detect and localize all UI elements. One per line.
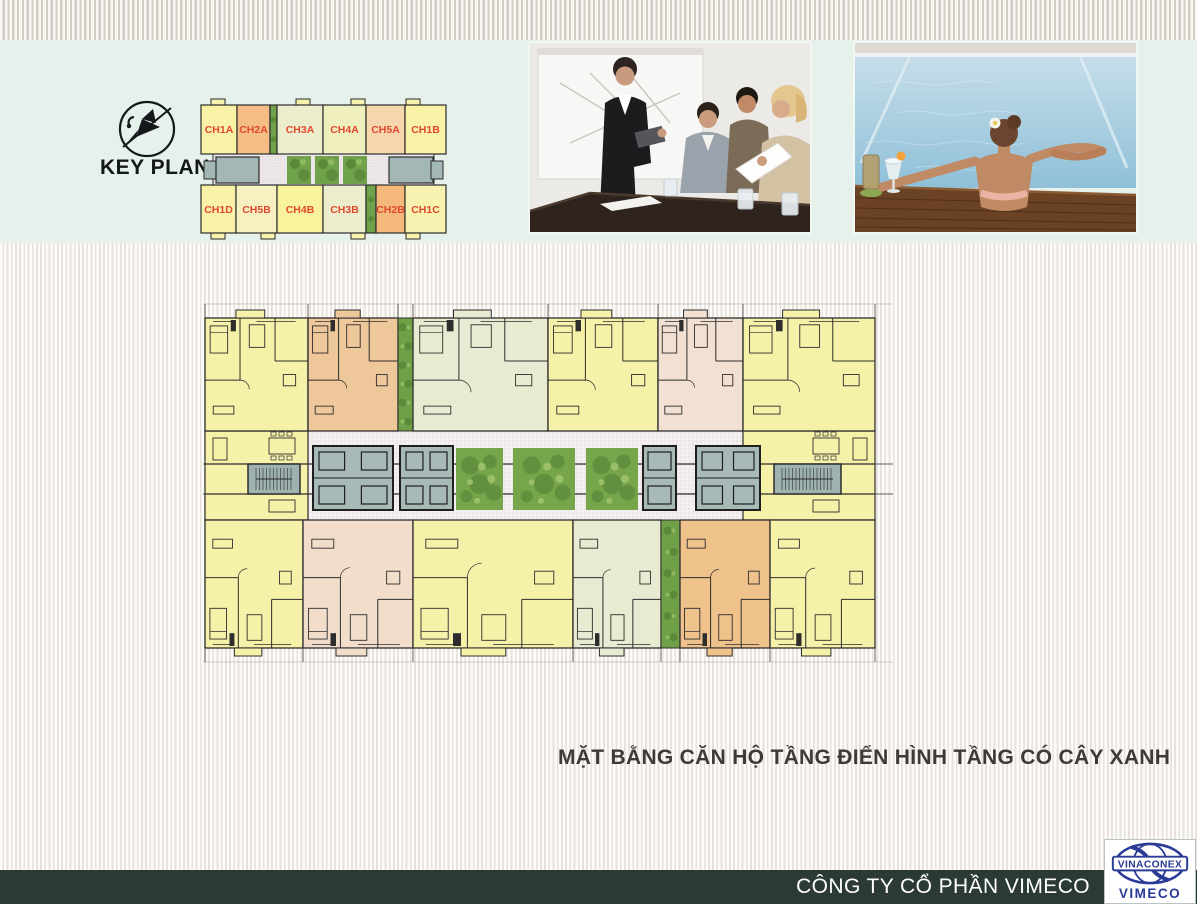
corridor-garden: [513, 448, 575, 510]
business-meeting-illustration: [530, 43, 810, 232]
plan-unit-strip: [398, 318, 413, 431]
logo-vinaconex-text: VINACONEX: [1118, 859, 1182, 870]
plan-unit-CH2B: [680, 520, 770, 656]
plan-unit-strip: [661, 520, 680, 648]
footer-bar: CÔNG TY CỔ PHẦN VIMECO: [0, 870, 1197, 904]
svg-text:CH1C: CH1C: [411, 204, 440, 216]
plan-unit-CH4A: [548, 310, 658, 431]
svg-text:CH5B: CH5B: [242, 204, 271, 216]
brochure-page: { "header": { "key_plan_title": "KEY PLA…: [0, 0, 1197, 904]
svg-text:CH3B: CH3B: [330, 204, 359, 216]
plan-unit-CH3B: [573, 520, 661, 656]
plan-unit-CH1B: [743, 310, 875, 431]
business-meeting-photo: [528, 41, 812, 234]
vimeco-logo: VINACONEX VIMECO: [1104, 839, 1196, 904]
floor-plan-caption: MẶT BẰNG CĂN HỘ TẦNG ĐIỂN HÌNH TẦNG CÓ C…: [558, 746, 1058, 770]
svg-text:CH5A: CH5A: [371, 124, 400, 136]
corridor-garden: [586, 448, 638, 510]
plan-unit-CH1A: [205, 310, 308, 431]
plan-unit-CH5A: [658, 310, 743, 431]
svg-text:CH2A: CH2A: [239, 124, 268, 136]
svg-text:CH3A: CH3A: [286, 124, 315, 136]
top-stripe-band: [0, 0, 1197, 40]
plan-unit-CH1D: [205, 520, 303, 656]
corridor-garden: [456, 448, 503, 510]
plan-unit-CH2A: [308, 310, 398, 431]
plan-unit-CH5B: [303, 520, 413, 656]
poolside-relaxation-photo: [853, 41, 1138, 234]
vinaconex-globe-icon: VINACONEX: [1106, 841, 1194, 887]
plan-unit-CH1C: [770, 520, 875, 656]
logo-vimeco-text: VIMECO: [1105, 887, 1195, 901]
bird-compass-icon: [114, 96, 180, 162]
plan-unit-CH3A: [413, 310, 548, 431]
svg-text:CH1A: CH1A: [205, 124, 234, 136]
poolside-illustration: [855, 43, 1136, 232]
key-plan-diagram: CH1ACH2ACH3ACH4ACH5ACH1BCH1DCH5BCH4BCH3B…: [201, 95, 446, 245]
svg-text:CH1B: CH1B: [411, 124, 440, 136]
svg-text:CH4A: CH4A: [330, 124, 359, 136]
plan-unit-CH4B: [413, 520, 573, 656]
company-name: CÔNG TY CỔ PHẦN VIMECO: [796, 870, 1090, 904]
svg-text:CH4B: CH4B: [286, 204, 315, 216]
floor-plan-drawing: [203, 298, 893, 683]
svg-text:CH1D: CH1D: [204, 204, 233, 216]
svg-text:CH2B: CH2B: [376, 204, 405, 216]
